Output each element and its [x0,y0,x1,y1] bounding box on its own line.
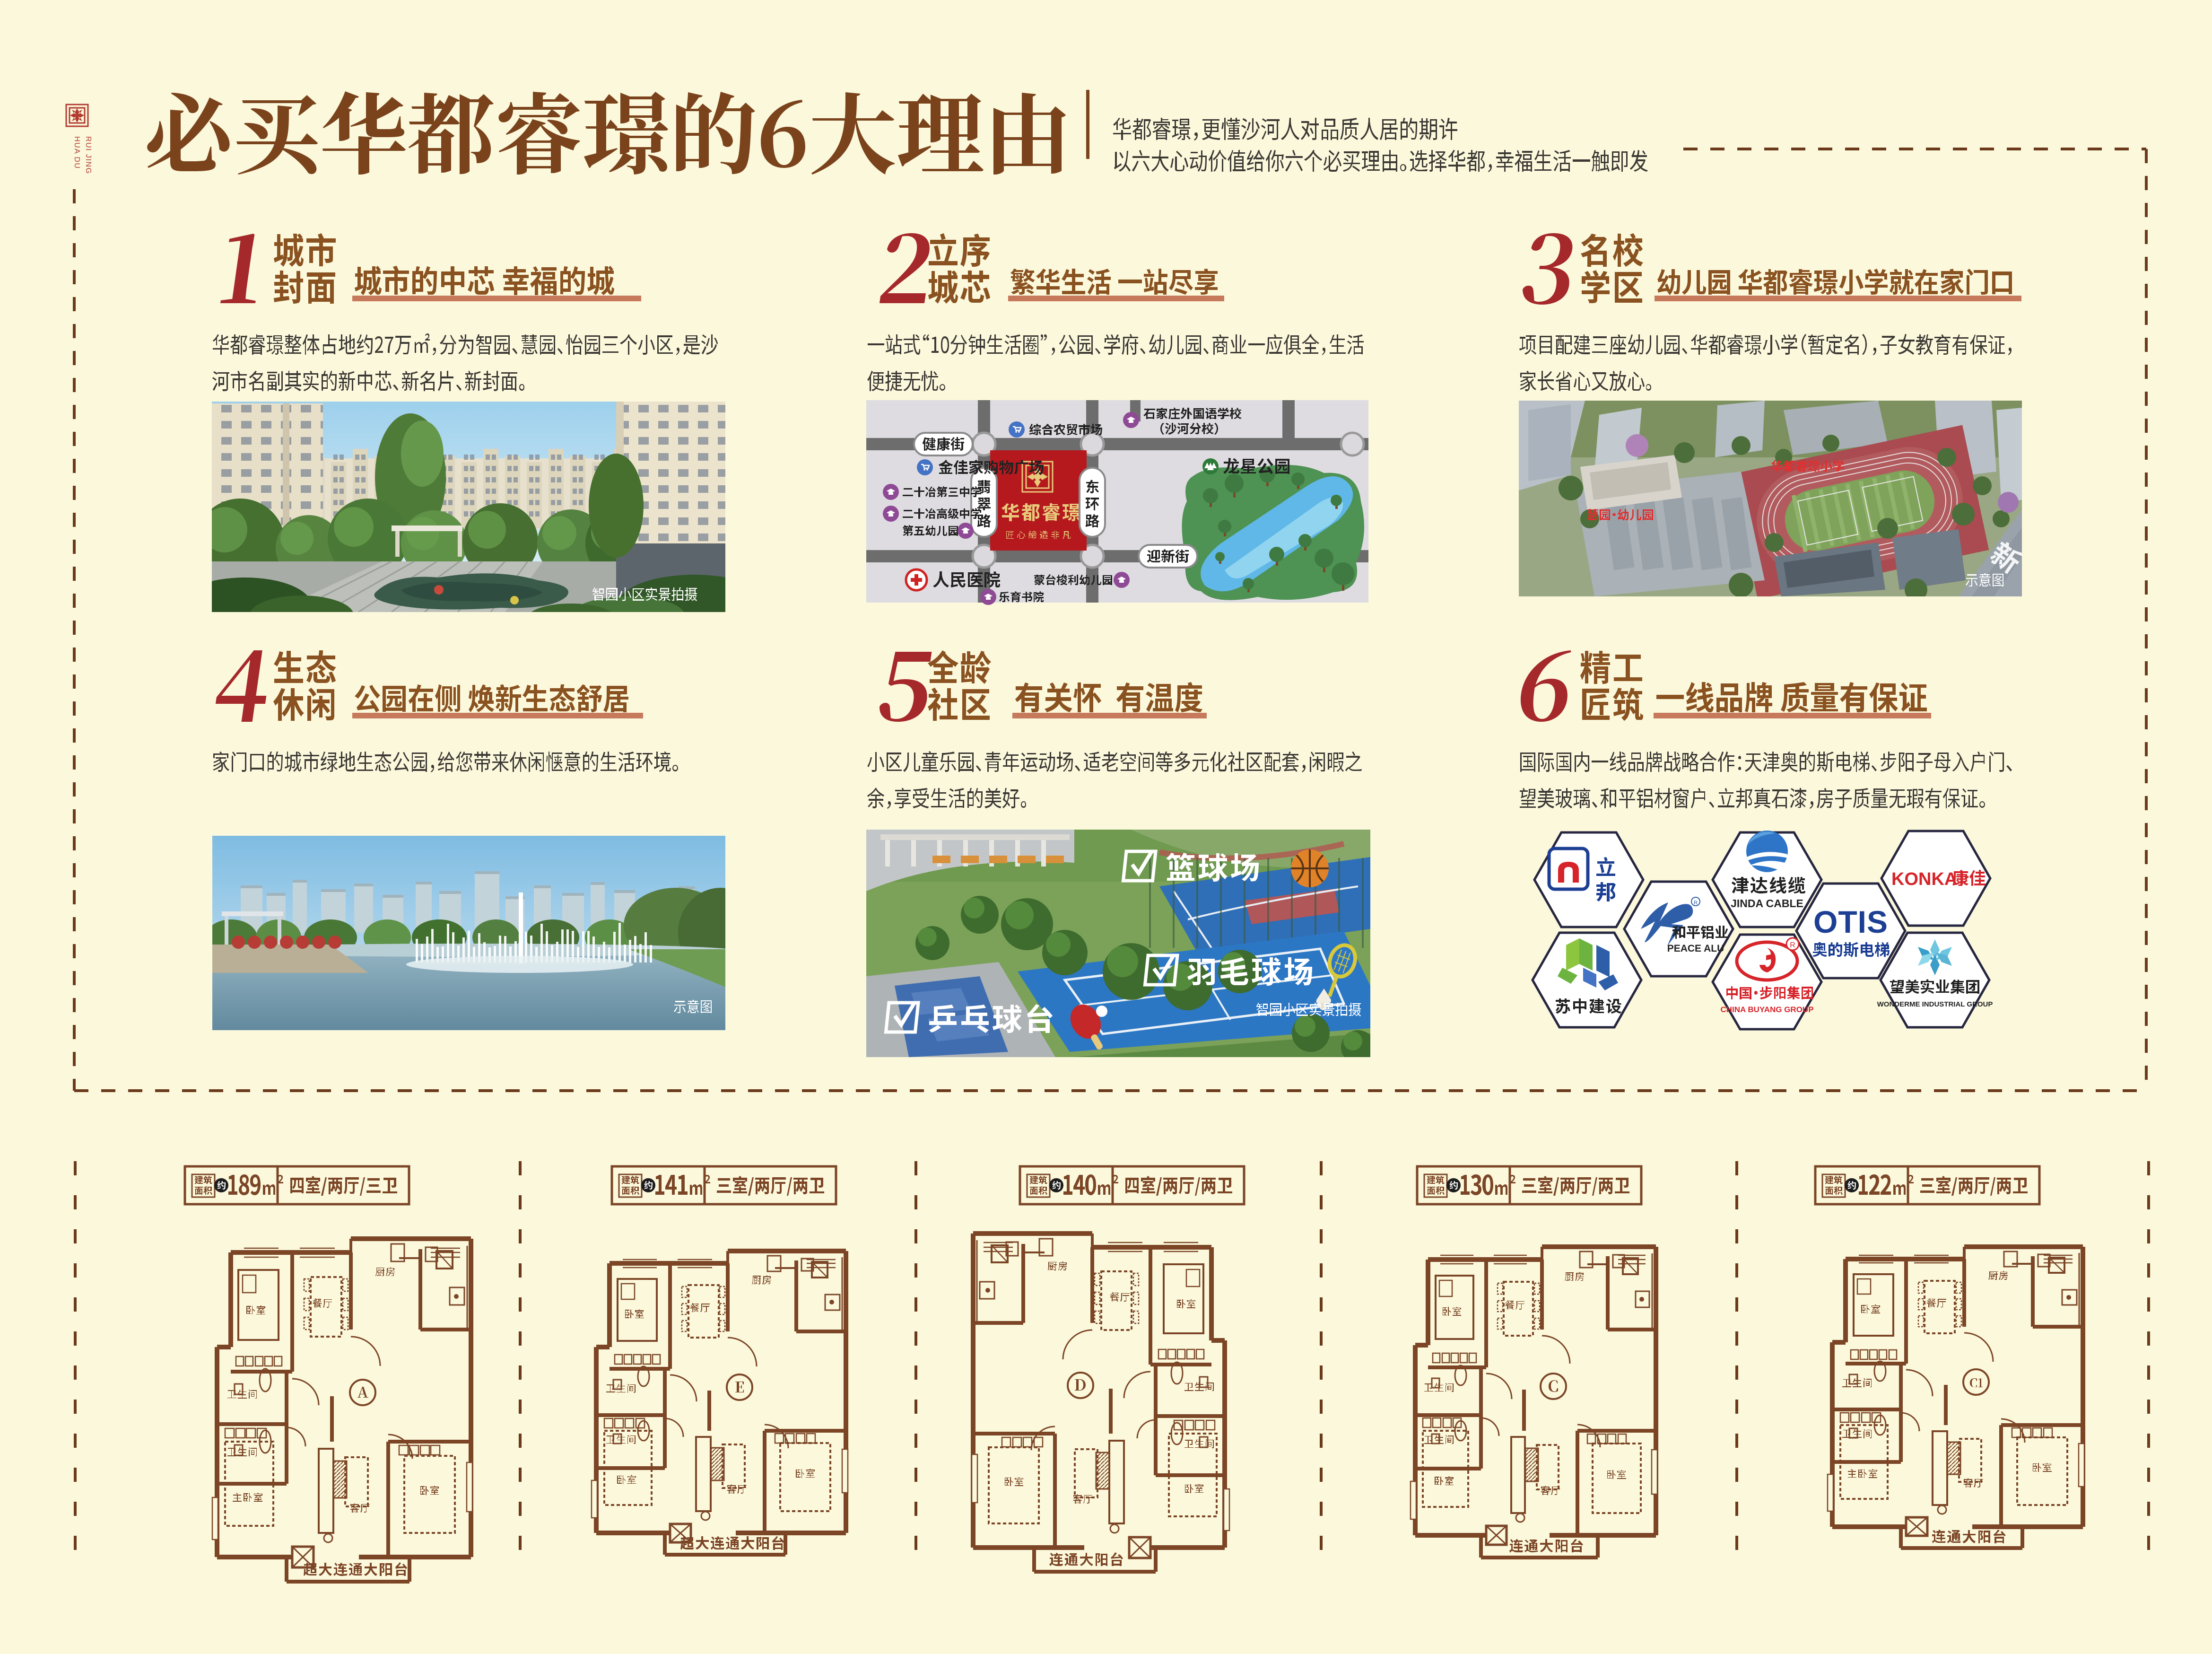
svg-text:PEACE ALU: PEACE ALU [1667,943,1724,954]
svg-text:WONDERME INDUSTRIAL GROUP: WONDERME INDUSTRIAL GROUP [1877,1000,1993,1008]
svg-text:KONKA: KONKA [1891,869,1957,889]
svg-text:R: R [1694,900,1698,906]
svg-text:R: R [1790,941,1795,949]
svg-text:HUA DU: HUA DU [73,136,81,169]
svg-text:JINDA CABLE: JINDA CABLE [1731,897,1803,910]
svg-text:OTIS: OTIS [1813,904,1888,939]
svg-text:RUI JING: RUI JING [84,136,92,174]
svg-text:CHINA BUYANG GROUP: CHINA BUYANG GROUP [1720,1005,1813,1014]
